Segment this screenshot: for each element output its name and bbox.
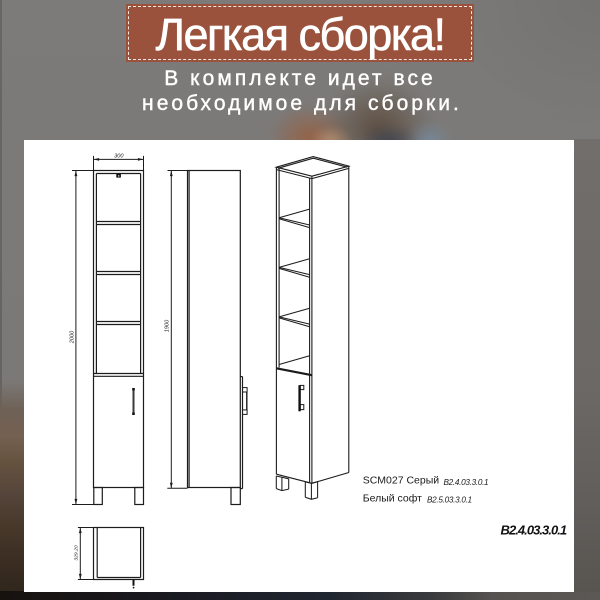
svg-text:B2.4.03.3.0.1: B2.4.03.3.0.1 (444, 478, 489, 487)
svg-text:1900: 1900 (165, 319, 171, 332)
svg-text:B2.4.03.3.0.1: B2.4.03.3.0.1 (501, 522, 567, 537)
svg-text:Белый софт: Белый софт (363, 492, 422, 504)
svg-text:SCM027 Серый: SCM027 Серый (363, 475, 440, 487)
svg-text:B2.5.03.3.0.1: B2.5.03.3.0.1 (427, 496, 472, 505)
svg-text:300: 300 (114, 153, 124, 159)
svg-text:329.20: 329.20 (74, 545, 80, 560)
svg-text:2000: 2000 (69, 330, 75, 344)
